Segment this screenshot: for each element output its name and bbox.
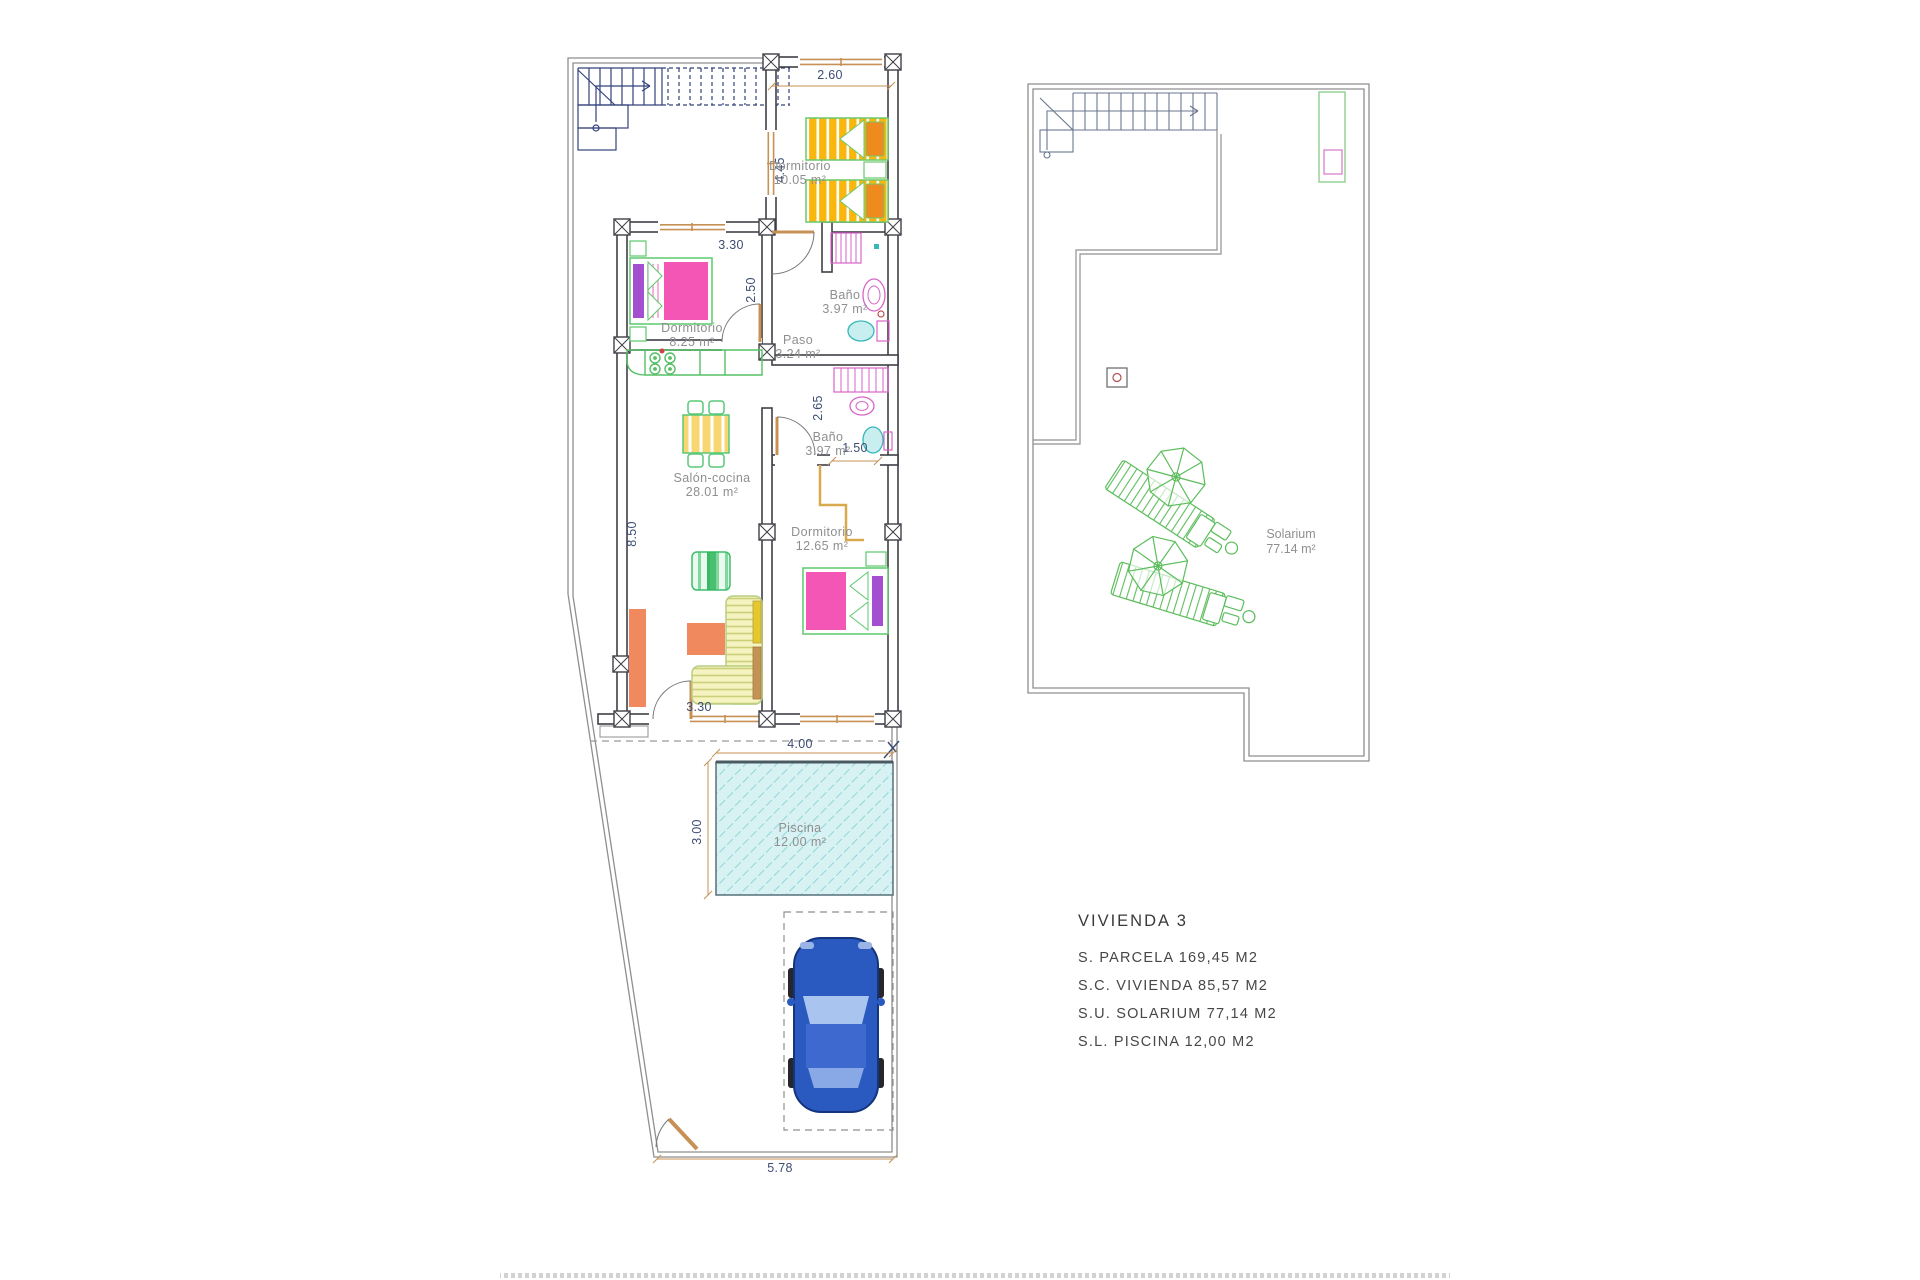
dim-bedroom1-width: 2.60 <box>817 68 843 82</box>
armchair-stripe <box>707 552 716 590</box>
dim-line-260 <box>768 82 895 90</box>
label-paso-name: Paso <box>783 333 813 347</box>
label-dormitorio1-name: Dormitorio <box>769 159 831 173</box>
summary-piscina: S.L. PISCINA 12,00 M2 <box>1078 1034 1255 1050</box>
pool-area: 12.00 m² <box>774 835 827 849</box>
planter-box-icon <box>1324 150 1342 174</box>
label-dormitorio3-area: 12.65 m² <box>796 539 849 553</box>
pool: Piscina 12.00 m² <box>716 741 899 895</box>
label-paso-area: 3.24 m² <box>775 347 820 361</box>
label-bano2-area: 3.97 m² <box>805 444 850 458</box>
dim-pool-depth: 3.00 <box>690 819 704 845</box>
dim-bedroom2-depth: 2.50 <box>744 277 758 303</box>
label-solarium-area: 77.14 m² <box>1266 542 1315 556</box>
label-dormitorio2-name: Dormitorio <box>661 321 723 335</box>
project-title: VIVIENDA 3 <box>1078 912 1188 930</box>
label-salon-area: 28.01 m² <box>686 485 739 499</box>
planter-icon <box>1319 92 1345 182</box>
label-bano2-name: Baño <box>813 430 844 444</box>
label-bano1-name: Baño <box>830 288 861 302</box>
bathroom1-fixtures <box>831 233 889 341</box>
solarium-staircase-icon <box>1040 93 1217 158</box>
label-salon-name: Salón-cocina <box>673 471 750 485</box>
solarium-inner-wall <box>1033 130 1221 444</box>
ground-floor-plan: Piscina 12.00 m² 4.00 3.00 <box>568 54 901 1175</box>
dining-table-icon <box>683 401 729 467</box>
label-solarium-name: Solarium <box>1266 527 1315 541</box>
summary-solarium: S.U. SOLARIUM 77,14 M2 <box>1078 1006 1277 1022</box>
rug-icon <box>687 623 725 655</box>
label-dormitorio2-area: 8.25 m² <box>669 335 714 349</box>
title-block: VIVIENDA 3 S. PARCELA 169,45 M2 S.C. VIV… <box>1078 912 1277 1050</box>
label-dormitorio3-name: Dormitorio <box>791 525 853 539</box>
floor-plan-drawing: Piscina 12.00 m² 4.00 3.00 <box>0 0 1920 1280</box>
sideboard-icon <box>629 609 646 707</box>
parking-area <box>784 912 893 1130</box>
double-bed-pink2-icon <box>803 552 888 634</box>
summary-parcela: S. PARCELA 169,45 M2 <box>1078 950 1258 966</box>
dim-bano2-depth: 2.65 <box>811 395 825 421</box>
dim-salon-door: 3.30 <box>686 700 712 714</box>
dim-bedroom2-width: 3.30 <box>718 238 744 252</box>
dim-salon-depth: 8.50 <box>625 521 639 547</box>
solarium-plan: Solarium 77.14 m² <box>1028 84 1369 761</box>
chimney-icon <box>1107 368 1127 387</box>
solarium-boundary <box>1028 84 1369 761</box>
dim-frontage: 5.78 <box>767 1161 793 1175</box>
label-dormitorio1-area: 10.05 m² <box>774 173 827 187</box>
label-bano1-area: 3.97 m² <box>822 302 867 316</box>
kitchen-counter-icon <box>627 349 762 376</box>
exterior-staircase-icon <box>578 68 790 150</box>
summary-vivienda: S.C. VIVIENDA 85,57 M2 <box>1078 978 1268 994</box>
dim-pool-width: 4.00 <box>787 737 813 751</box>
cropped-text-artifact <box>500 1273 1450 1278</box>
pool-label: Piscina <box>778 821 821 835</box>
car-icon <box>787 938 885 1112</box>
entrance-gate-door <box>656 1119 697 1149</box>
